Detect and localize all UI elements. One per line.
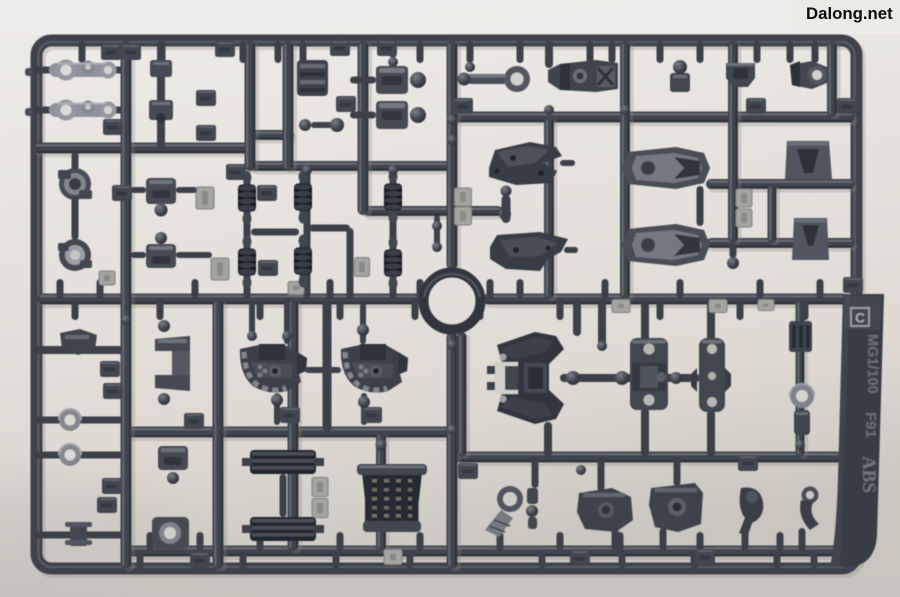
svg-text:F91: F91 xyxy=(862,412,879,438)
svg-text:C: C xyxy=(855,310,865,326)
svg-text:ABS: ABS xyxy=(858,456,879,493)
svg-text:MG1/100: MG1/100 xyxy=(864,334,880,394)
svg-text:Dalong.net: Dalong.net xyxy=(806,4,893,23)
